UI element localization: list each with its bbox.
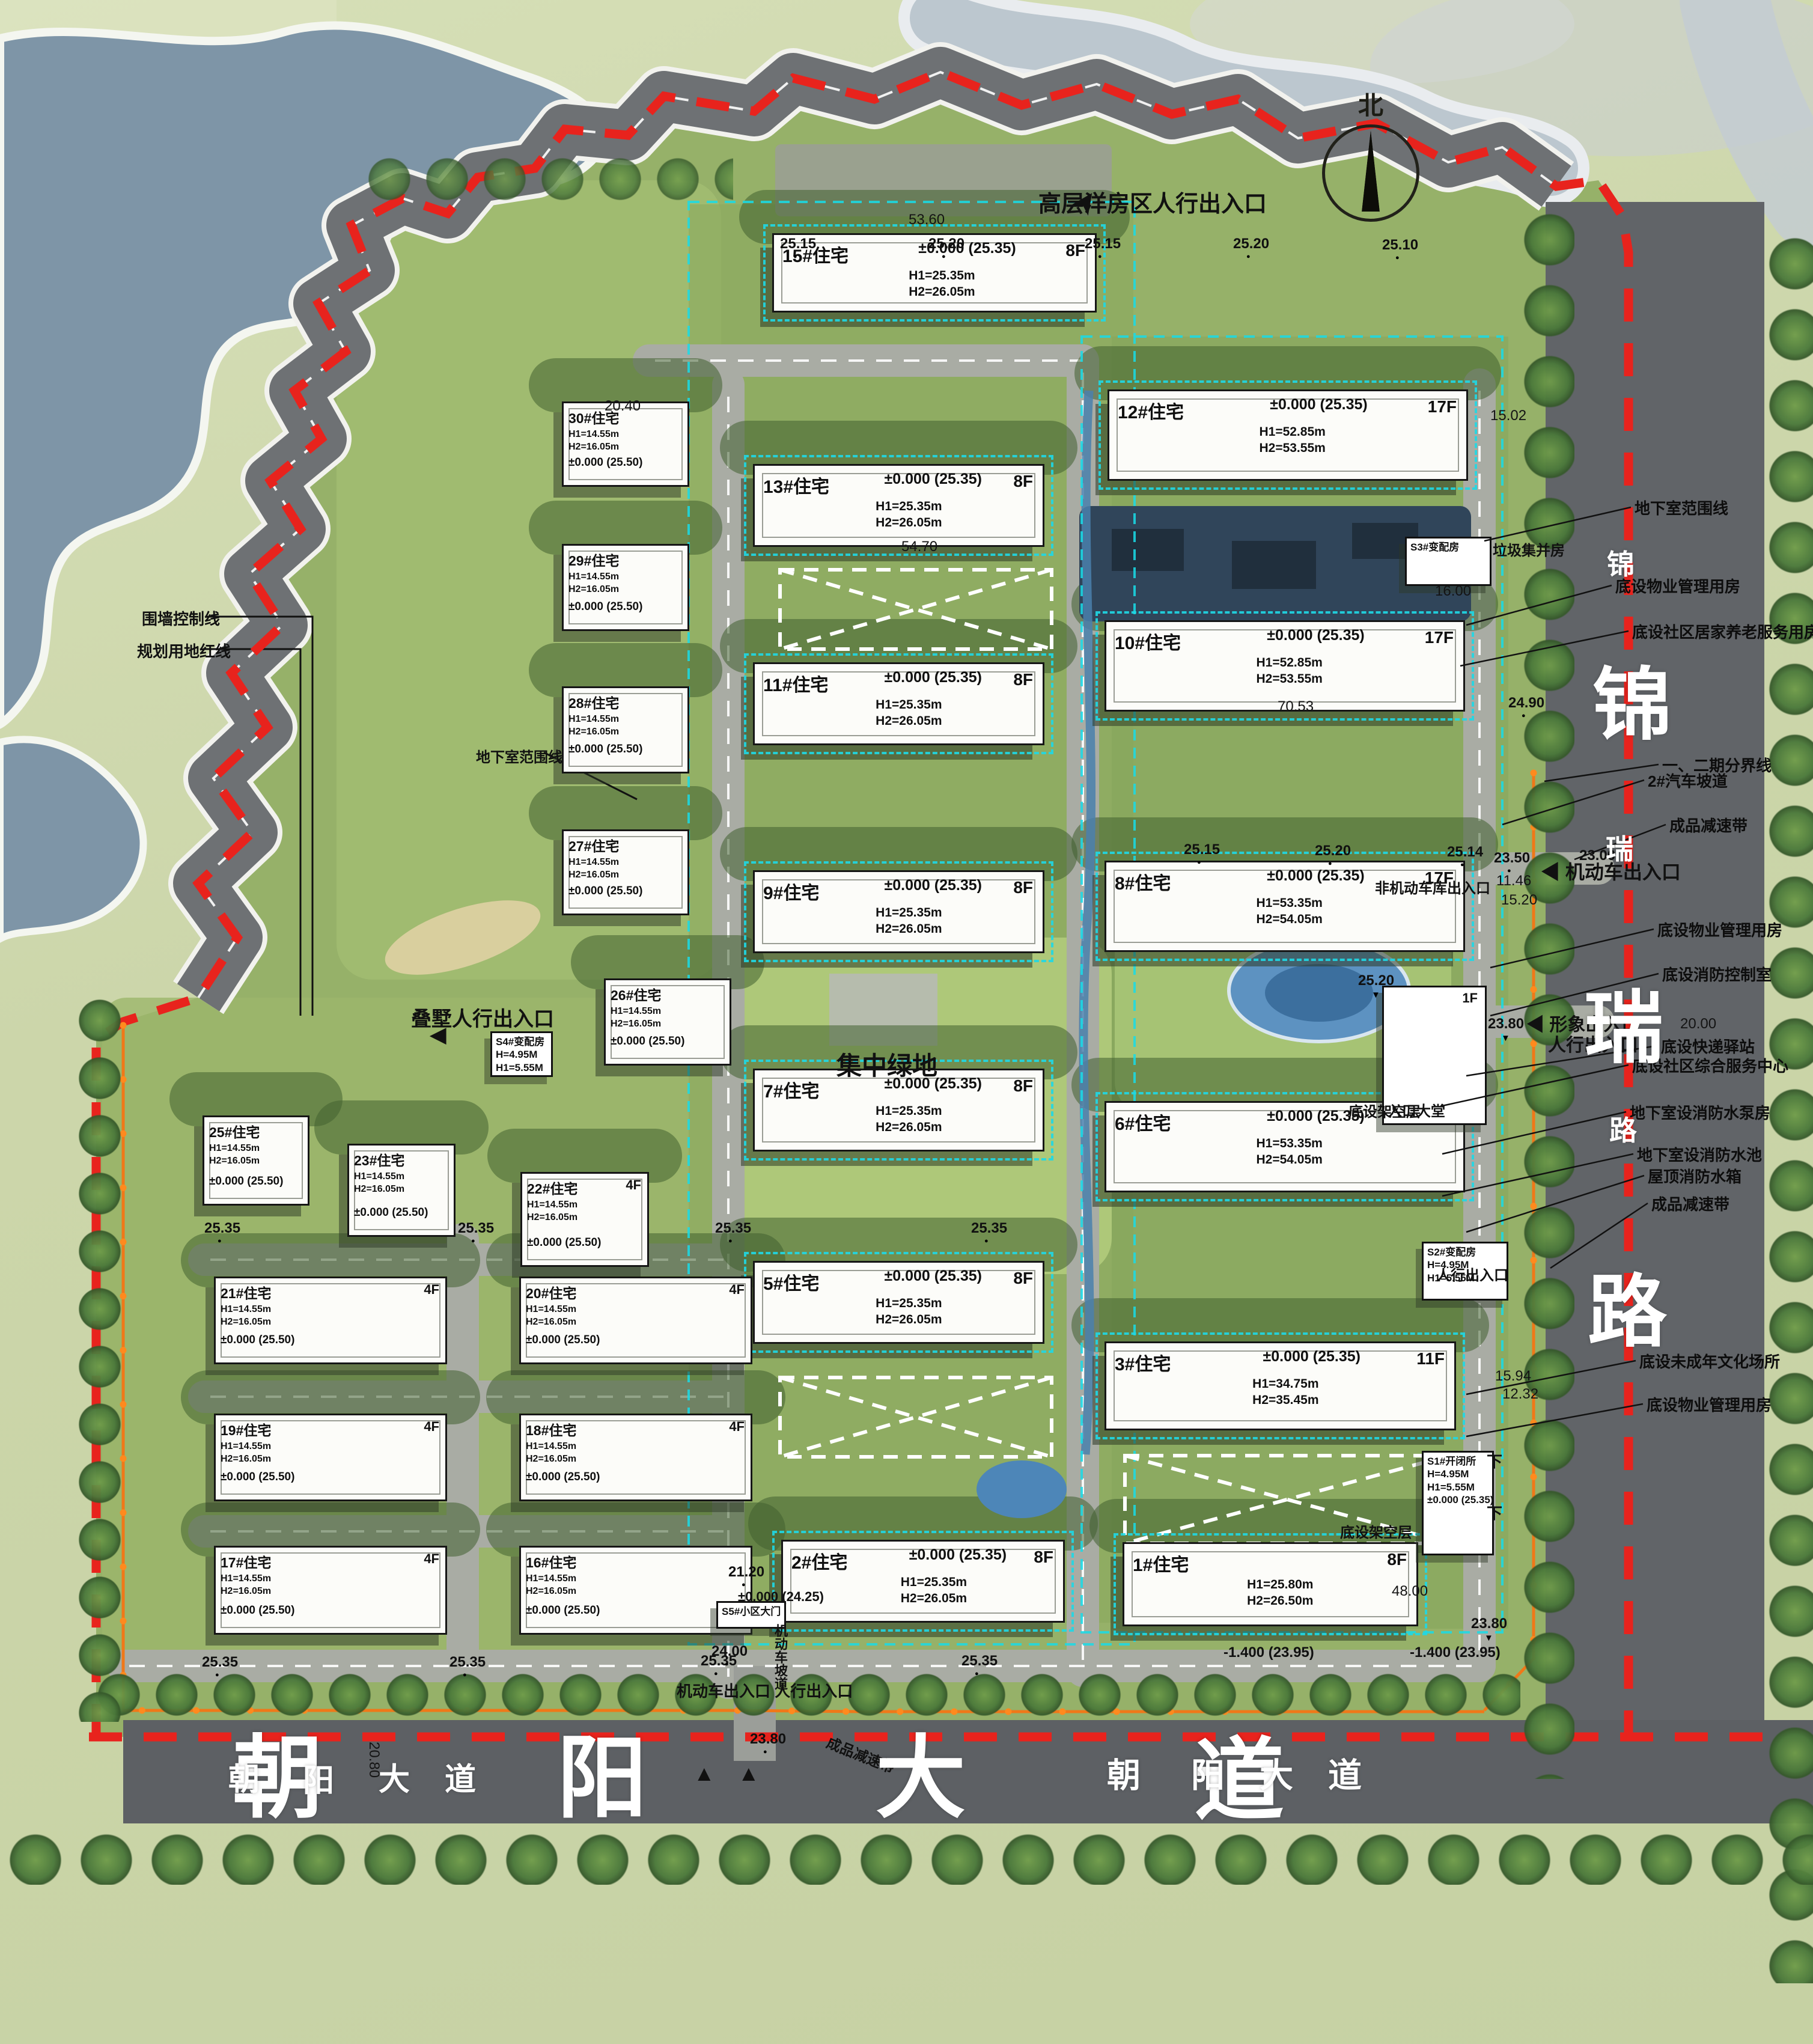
annotation: 底设物业管理用房 <box>1657 918 1782 941</box>
dimension: 15.02 <box>1490 407 1526 424</box>
spot-marker-icon: ● <box>975 1671 979 1677</box>
road-name-char: 大 <box>876 1706 966 1836</box>
spot-elevation: 25.35 <box>715 1220 751 1237</box>
road-name-char: 阳 <box>1191 1749 1225 1798</box>
spot-elevation: 23.80 <box>1488 1016 1524 1033</box>
dimension: 16.00 <box>1435 583 1471 600</box>
annotation-leader <box>1466 1404 1643 1436</box>
map-label: 非机动车库出入口 <box>1375 876 1490 897</box>
spot-elevation: 23.80 <box>750 1731 786 1748</box>
compass-needle-icon <box>1362 130 1380 212</box>
spot-marker-icon: ▼ <box>1501 1034 1510 1043</box>
spot-elevation: 25.20 <box>1358 972 1394 989</box>
annotation: 底设社区居家养老服务用房 <box>1632 620 1813 642</box>
road-name-char: 阳 <box>557 1706 647 1836</box>
annotation-leader <box>1490 929 1654 968</box>
road-name-char: 阳 <box>303 1756 334 1801</box>
map-label: 机动车坡道 <box>770 1624 790 1690</box>
spot-marker-icon: ● <box>1460 862 1464 868</box>
spot-elevation: 25.35 <box>971 1220 1007 1237</box>
north-compass: 北 <box>1314 85 1428 222</box>
map-label: 集中绿地 <box>836 1046 937 1082</box>
spot-elevation: 25.15 <box>1184 841 1220 858</box>
map-label: 下 <box>1487 1501 1502 1524</box>
spot-marker-icon: ● <box>1522 713 1526 719</box>
road-name-char: 道 <box>1328 1749 1362 1798</box>
annotation-leader <box>1442 1112 1626 1154</box>
spot-elevation: 21.20 <box>728 1564 764 1581</box>
dimension: 70.53 <box>1278 698 1314 715</box>
spot-marker-icon: ● <box>1098 254 1102 260</box>
spot-marker-icon: ● <box>942 254 946 260</box>
dimension: 54.70 <box>901 538 937 555</box>
map-label: 下 <box>1487 1450 1502 1472</box>
spot-elevation: 23.80 <box>1471 1615 1507 1632</box>
spot-marker-icon: ● <box>742 1582 746 1588</box>
dimension: 15.94 <box>1495 1368 1531 1385</box>
road-name-char: 大 <box>1260 1749 1293 1798</box>
spot-marker-icon: ● <box>463 1672 467 1679</box>
spot-elevation: 25.15 <box>780 236 816 252</box>
spot-marker-icon: ● <box>215 1672 219 1679</box>
annotation-leader <box>1502 780 1644 825</box>
dimension: 12.32 <box>1502 1386 1538 1403</box>
map-label: 垃圾集并房 <box>1493 538 1565 560</box>
spot-elevation: 25.14 <box>1447 844 1483 861</box>
spot-marker-icon: ● <box>725 1661 729 1668</box>
annotation-leader <box>1544 764 1659 781</box>
spot-elevation: 24.00 <box>711 1643 748 1660</box>
dimension: 20.00 <box>1680 1016 1716 1033</box>
road-name-char: 朝 <box>228 1754 260 1799</box>
spot-marker-icon: ● <box>218 1238 222 1245</box>
road-name-char: 道 <box>445 1754 476 1799</box>
annotation: 成品减速带 <box>1651 1192 1729 1215</box>
spot-elevation: 25.35 <box>449 1654 486 1671</box>
compass-dial <box>1322 124 1419 222</box>
dimension: 48.00 <box>1392 1583 1428 1600</box>
map-label: 底设架空层 <box>1348 1100 1421 1121</box>
annotation-leader <box>1442 1154 1633 1196</box>
spot-marker-icon: ● <box>763 1749 767 1756</box>
road-name-char: 大 <box>379 1754 410 1799</box>
annotation-leader <box>1466 585 1612 625</box>
road-name-char: 瑞 <box>1584 965 1663 1079</box>
spot-marker-icon: ● <box>1328 861 1332 867</box>
annotation: 底设消防控制室 <box>1662 963 1772 985</box>
annotation-leader <box>1466 1361 1636 1394</box>
spot-elevation: 25.20 <box>1233 236 1269 252</box>
annotation: 屋顶消防水箱 <box>1648 1165 1741 1187</box>
spot-marker-icon: ▼ <box>1484 1634 1493 1643</box>
annotation-leader <box>1484 507 1631 541</box>
road-name-char: 锦 <box>1592 641 1672 756</box>
spot-marker-icon: ● <box>1395 255 1400 261</box>
spot-marker-icon: ● <box>984 1238 989 1245</box>
spot-marker-icon: ▼ <box>1371 990 1380 999</box>
dimension: 11.46 <box>1496 873 1531 889</box>
spot-elevation: 24.90 <box>1508 695 1544 712</box>
annotation: 地下室范围线 <box>1635 496 1728 519</box>
dimension: 15.20 <box>1501 892 1537 909</box>
map-label: 地下室范围线 <box>476 745 562 766</box>
spot-marker-icon: ● <box>1592 865 1597 872</box>
spot-marker-icon: ● <box>1197 859 1201 866</box>
spot-marker-icon: ● <box>1246 254 1251 260</box>
map-label: ◀ <box>430 1023 446 1047</box>
spot-elevation: 25.20 <box>928 236 964 252</box>
dimension: 20.40 <box>605 398 641 415</box>
map-label: 规划用地红线 <box>137 639 231 662</box>
dimension: 53.60 <box>909 212 945 228</box>
map-label: ▲ <box>693 1761 715 1786</box>
spot-elevation: 23.50 <box>1494 850 1530 867</box>
residential-site-plan: 15#住宅8F±0.000 (25.35)H1=25.35m H2=26.05m… <box>0 0 1813 2044</box>
road-name-char: 锦 <box>1607 543 1635 582</box>
map-label: 底设架空层 <box>1340 1521 1412 1542</box>
spot-elevation: 25.20 <box>1315 843 1351 859</box>
map-label: ±0.000 (24.25) <box>738 1589 824 1605</box>
spot-elevation: 25.35 <box>204 1220 240 1237</box>
map-label: ▲ <box>738 1761 760 1786</box>
annotation: 2#汽车坡道 <box>1648 769 1728 792</box>
annotation: 地下室设消防水池 <box>1637 1143 1762 1165</box>
road-name-char: 瑞 <box>1606 828 1633 867</box>
annotation: 成品减速带 <box>1669 814 1747 836</box>
road-name-char: 朝 <box>1107 1749 1141 1798</box>
spot-elevation: 25.15 <box>1085 236 1121 252</box>
road-name-char: 路 <box>1588 1248 1667 1363</box>
map-label: 围墙控制线 <box>142 607 220 629</box>
spot-elevation: 25.35 <box>202 1654 238 1671</box>
spot-marker-icon: ● <box>714 1671 718 1677</box>
spot-marker-icon: ● <box>471 1238 475 1245</box>
north-label: 北 <box>1314 85 1428 122</box>
map-label: 人行出入口 <box>1436 1263 1508 1284</box>
annotation: 地下室设消防水泵房 <box>1630 1101 1770 1123</box>
spot-elevation: 25.10 <box>1382 237 1418 254</box>
annotation: 底设物业管理用房 <box>1647 1393 1772 1415</box>
map-label: -1.400 (23.95) <box>1410 1644 1501 1661</box>
spot-marker-icon: ● <box>793 254 797 260</box>
map-label: 机动车出入口 人行出入口 <box>677 1679 853 1701</box>
map-label: -1.400 (23.95) <box>1223 1644 1314 1661</box>
spot-marker-icon: ● <box>728 1238 733 1245</box>
road-name-char: 路 <box>1609 1109 1637 1149</box>
spot-elevation: 25.35 <box>458 1220 494 1237</box>
spot-elevation: 25.35 <box>961 1653 998 1670</box>
